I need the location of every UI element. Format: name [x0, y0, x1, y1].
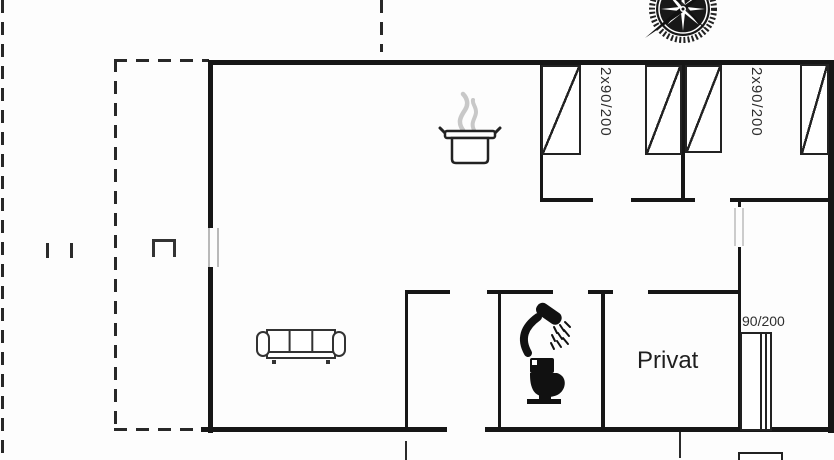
exterior-wall-top — [208, 60, 834, 65]
terrace-bottom-dashed-line — [114, 428, 208, 431]
privat-left-wall — [601, 290, 605, 431]
partition-wall-segment — [487, 290, 553, 294]
bedroom-a-bed-size-label: 2x90/200 — [597, 67, 614, 137]
bed-icon — [800, 64, 829, 155]
bed-edge-line — [765, 334, 767, 429]
water-spray-icon — [551, 322, 570, 349]
lower-terrace-edge-line — [679, 432, 681, 458]
single-bed-icon — [740, 332, 772, 431]
plot-boundary-left-dashed-line — [1, 0, 4, 460]
sofa-icon — [254, 322, 348, 366]
floor-plan: 2x90/200 2x90/200 90/200 Privat — [0, 0, 834, 460]
terrace-top-dashed-line — [114, 59, 209, 62]
partition-wall-segment — [406, 290, 450, 294]
single-bed-size-label: 90/200 — [742, 313, 785, 329]
boundary-marker — [46, 243, 49, 258]
private-room-label: Privat — [637, 347, 698, 375]
bedroom-front-wall-segment — [631, 198, 695, 202]
window-glazing-line — [217, 228, 219, 267]
door-frame-line — [734, 208, 736, 246]
bed-icon — [645, 65, 682, 155]
door-frame-line — [742, 208, 744, 246]
window-glazing-line — [208, 228, 210, 267]
bed-icon — [541, 65, 581, 155]
lower-terrace-edge-line — [405, 441, 407, 460]
terrace-furniture-symbol — [738, 452, 783, 460]
compass-rose-icon — [638, 0, 728, 54]
single-room-wall-stub — [738, 198, 741, 207]
exterior-wall-left-lower — [208, 267, 213, 433]
bathroom-left-wall — [498, 290, 501, 431]
steam-icon — [460, 94, 467, 130]
bed-edge-line — [760, 334, 762, 429]
terrace-fixture-symbol — [152, 239, 176, 257]
bed-icon — [685, 65, 722, 153]
hall-left-wall — [405, 290, 408, 431]
exterior-wall-bottom-right — [485, 427, 834, 432]
plot-boundary-top-dashed-line — [380, 0, 383, 52]
exterior-wall-left-upper — [208, 60, 213, 228]
terrace-left-dashed-line — [114, 59, 117, 431]
bedroom-front-wall-segment — [540, 198, 593, 202]
bedroom-front-wall-segment — [730, 198, 834, 202]
exterior-wall-bottom-left — [201, 427, 447, 432]
boundary-marker — [70, 243, 73, 258]
cooking-pot-icon — [438, 88, 502, 166]
partition-wall-segment — [648, 290, 740, 294]
bedroom-b-bed-size-label: 2x90/200 — [748, 67, 765, 137]
steam-icon — [473, 100, 476, 130]
toilet-icon — [521, 356, 573, 408]
